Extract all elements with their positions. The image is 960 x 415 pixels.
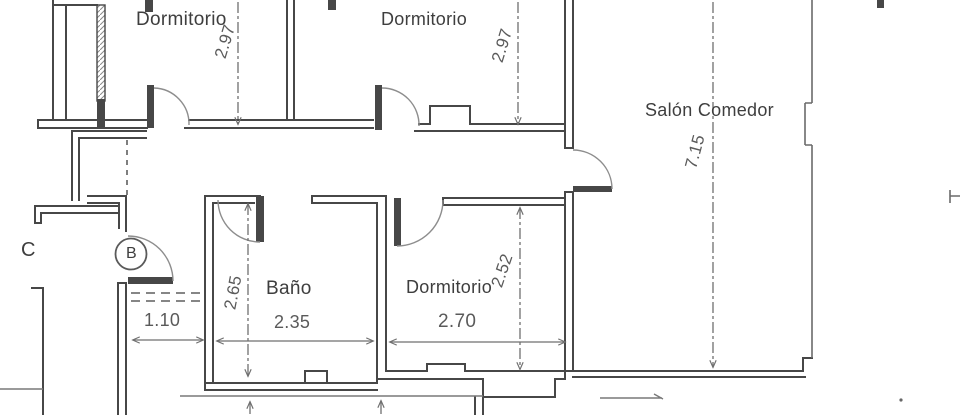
door-b-label: B bbox=[123, 246, 140, 262]
bano-door-arc bbox=[218, 200, 260, 242]
room-label-dormitorio-top-middle: Dormitorio bbox=[381, 10, 467, 28]
wall-dorm3-bottom-upper bbox=[386, 364, 573, 371]
wall-dorm3-top bbox=[443, 198, 565, 205]
wall-left-lower bbox=[32, 288, 43, 415]
walls-main bbox=[32, 0, 812, 415]
wall-top-left-outer bbox=[53, 0, 97, 120]
room-label-salon-comedor: Salón Comedor bbox=[645, 101, 774, 119]
walls-right-facade bbox=[805, 0, 960, 358]
dimension-bano-width: 2.35 bbox=[274, 313, 310, 331]
wall-solid-strip bbox=[97, 99, 105, 127]
room-label-dormitorio-bottom: Dormitorio bbox=[406, 278, 492, 296]
top-stub-mid bbox=[328, 0, 336, 10]
floor-plan-drawing bbox=[0, 0, 960, 415]
wall-divider-room1-room2 bbox=[287, 0, 294, 120]
door-b-leaf bbox=[128, 277, 173, 284]
wall-bano-bottom bbox=[205, 371, 377, 390]
wall-bano-top-right bbox=[312, 196, 386, 203]
dorm3-door-arc bbox=[397, 200, 443, 246]
wall-entry-step bbox=[35, 206, 119, 223]
wall-door-b bbox=[118, 283, 126, 415]
room-label-dormitorio-top-left: Dormitorio bbox=[136, 10, 227, 29]
outer-line-bottom-right bbox=[600, 394, 663, 399]
wall-hall-north bbox=[72, 131, 146, 200]
wall-room1-bottom-left bbox=[38, 120, 147, 128]
scan-dot bbox=[899, 398, 902, 401]
door2-leaf bbox=[375, 85, 382, 130]
wall-c-label: C bbox=[21, 240, 36, 260]
entry-threshold-dashed bbox=[131, 293, 205, 301]
wall-divider-hall-salon-lower bbox=[565, 192, 573, 377]
wall-divider-bano-dorm3 bbox=[377, 196, 386, 383]
door-arcs bbox=[128, 88, 612, 281]
wall-salon-right bbox=[805, 0, 812, 358]
salon-door-leaf bbox=[573, 186, 612, 192]
dorm3-door-leaf bbox=[394, 198, 401, 246]
wall-closet-room2 bbox=[415, 106, 565, 131]
door2-arc bbox=[382, 88, 419, 126]
door1-leaf bbox=[147, 85, 154, 128]
wall-hatched-strip bbox=[97, 5, 105, 101]
wall-dorm3-bottom-box bbox=[377, 379, 565, 397]
wall-stub-below bbox=[475, 397, 483, 415]
bano-door-leaf bbox=[256, 196, 264, 242]
room-label-bano: Baño bbox=[266, 279, 312, 298]
wall-fragment-right-edge bbox=[950, 190, 960, 203]
floor-plan: Dormitorio Dormitorio Salón Comedor Baño… bbox=[0, 0, 960, 415]
wall-salon-bottom bbox=[573, 358, 812, 377]
salon-door-arc bbox=[573, 150, 612, 189]
door1-arc bbox=[154, 88, 189, 125]
wall-rooms-bottom-mid bbox=[185, 120, 373, 128]
top-stub-right bbox=[877, 0, 884, 8]
dimension-dorm3-width: 2.70 bbox=[438, 312, 476, 331]
threshold-marks bbox=[127, 140, 205, 301]
wall-divider-room2-salon-upper bbox=[565, 0, 573, 148]
dimension-hall-width: 1.10 bbox=[144, 311, 180, 329]
